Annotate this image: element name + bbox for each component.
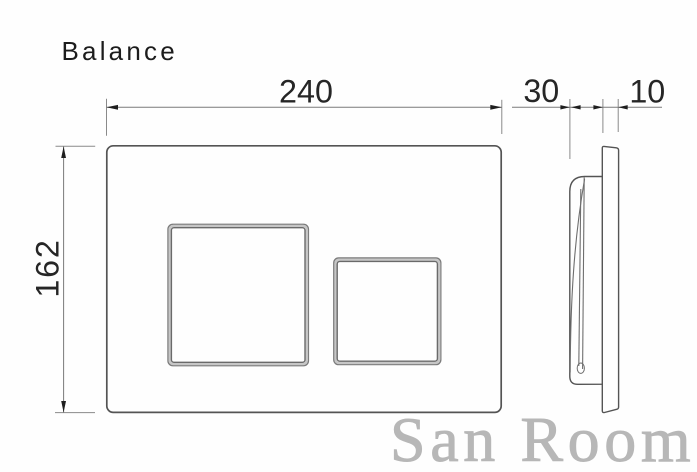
- svg-text:162: 162: [30, 238, 66, 297]
- svg-text:Balance: Balance: [62, 36, 178, 66]
- svg-text:10: 10: [629, 74, 665, 110]
- svg-text:San Room: San Room: [390, 404, 695, 472]
- svg-text:240: 240: [279, 73, 333, 109]
- svg-text:30: 30: [523, 73, 559, 109]
